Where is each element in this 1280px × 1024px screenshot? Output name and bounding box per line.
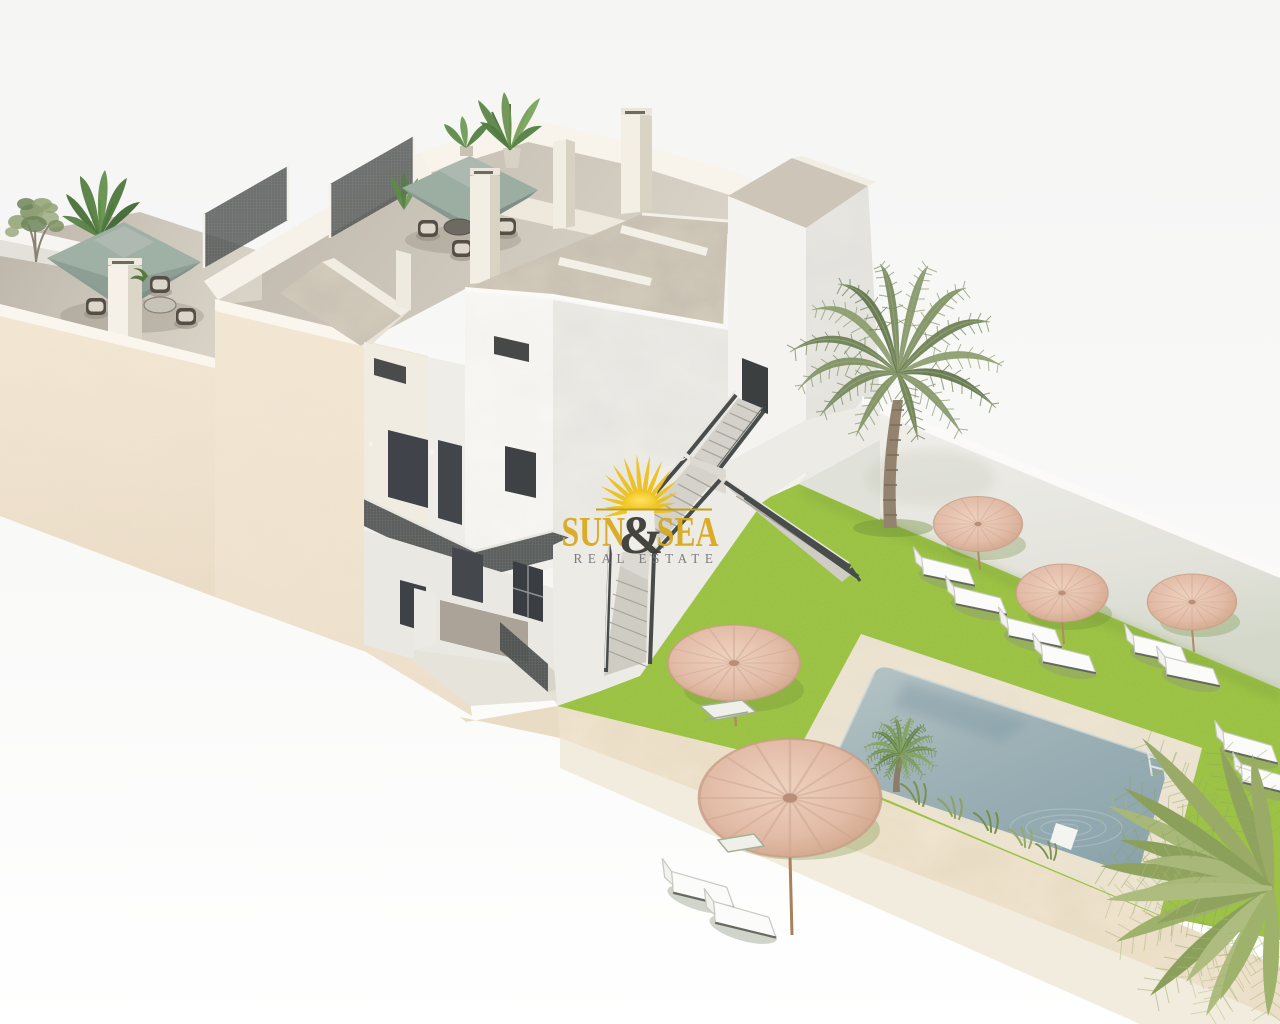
svg-text:REAL ESTATE: REAL ESTATE bbox=[574, 552, 719, 567]
